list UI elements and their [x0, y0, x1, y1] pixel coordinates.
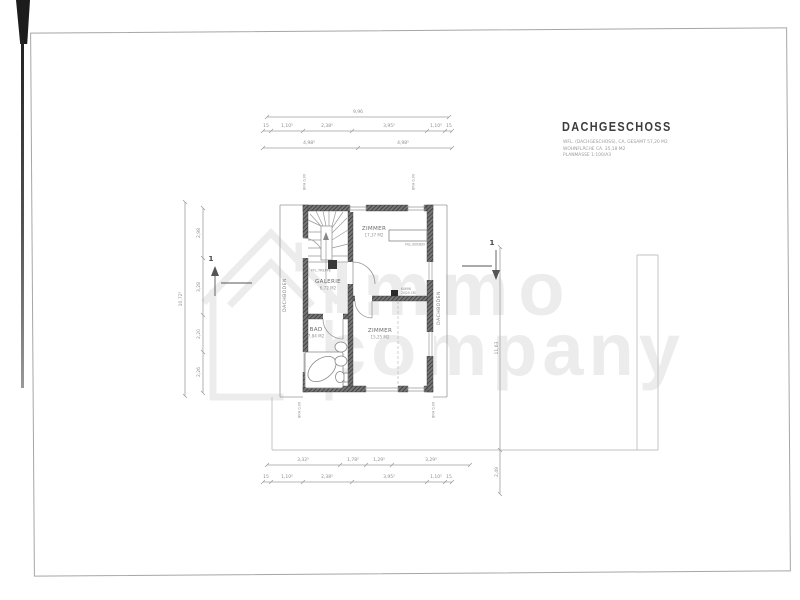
page-border: [30, 27, 791, 576]
scanned-floor-plan-page: Immo company: [0, 0, 800, 600]
scan-artifact: [21, 40, 24, 388]
